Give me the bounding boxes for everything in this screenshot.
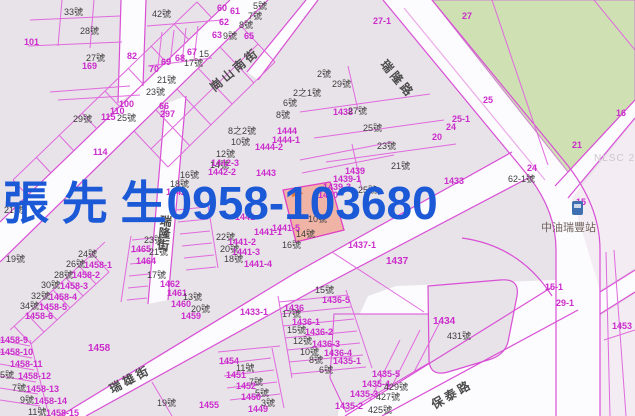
house-number-label: 29號 <box>332 80 351 89</box>
house-number-label: 32號 <box>31 292 50 301</box>
lot-number-label: 27-1 <box>373 17 391 26</box>
house-number-label: 29號 <box>73 115 92 124</box>
lot-number-label: 169 <box>82 62 97 71</box>
lot-number-label: 1458-4 <box>49 293 77 302</box>
house-number-label: 6號 <box>283 99 297 108</box>
lot-number-label: 63 <box>212 31 222 40</box>
house-number-label: 62-1號 <box>508 175 535 184</box>
lot-number-label: 1435-2 <box>335 402 363 411</box>
house-number-label: 2之1號 <box>293 89 321 98</box>
lot-number-label: 24 <box>446 123 456 132</box>
lot-number-label: 1458-1 <box>84 261 112 270</box>
lot-number-label: 1452 <box>236 382 256 391</box>
house-number-label: 425號 <box>368 406 392 415</box>
lot-number-label: 21 <box>572 141 582 150</box>
lot-number-label: 1460 <box>171 300 191 309</box>
lot-number-label: 1437-1 <box>348 241 376 250</box>
lot-number-label: 1449 <box>248 405 268 414</box>
gas-station-icon <box>572 201 583 215</box>
house-number-label: 19號 <box>6 255 25 264</box>
house-number-label: 24號 <box>78 250 97 259</box>
lot-number-label: 1458-9 <box>0 336 28 345</box>
house-number-label: 431號 <box>447 332 471 341</box>
lot-number-label: 65 <box>244 32 254 41</box>
lot-number-label: 101 <box>24 38 39 47</box>
lot-number-label: 62 <box>219 18 229 27</box>
house-number-label: 10號 <box>231 138 250 147</box>
lot-number-label: 70 <box>149 65 159 74</box>
lot-number-label: 27 <box>462 12 472 21</box>
phone-watermark: 張 先 生0958-103680 <box>3 167 438 233</box>
house-number-label: 18號 <box>224 255 243 264</box>
lot-number-label: 1458-13 <box>26 385 59 394</box>
lot-number-label: 15-1 <box>545 283 563 292</box>
nlsc-watermark: NLSC 2 <box>594 153 635 164</box>
house-number-label: 34號 <box>20 302 39 311</box>
lot-number-label: 1458-3 <box>60 282 88 291</box>
house-number-label: 12號 <box>293 337 312 346</box>
lot-number-label: 1458 <box>88 344 110 354</box>
house-number-label: 25號 <box>363 124 382 133</box>
lot-number-label: 1458-2 <box>72 271 100 280</box>
lot-number-label: 60 <box>217 4 227 13</box>
lot-number-label: 1435-3 <box>350 390 378 399</box>
lot-number-label: 1458-15 <box>46 409 79 416</box>
house-number-label: 2號 <box>317 70 331 79</box>
house-number-label: 26號 <box>66 260 85 269</box>
house-number-label: 5號 <box>0 371 14 380</box>
lot-number-label: 25 <box>483 96 493 105</box>
lot-number-label: 1436-5 <box>322 296 350 305</box>
house-number-label: 7號 <box>12 384 26 393</box>
lot-number-label: 67 <box>187 48 197 57</box>
lot-number-label: 1435-1 <box>333 357 361 366</box>
lot-number-label: 1453 <box>612 322 632 331</box>
house-number-label: 23號 <box>377 142 396 151</box>
lot-number-label: 1458-14 <box>34 397 67 406</box>
lot-number-label: 1459 <box>181 312 201 321</box>
lot-number-label: 1458-6 <box>25 312 53 321</box>
house-number-label: 15號 <box>315 286 334 295</box>
house-number-label: 5號 <box>253 2 267 11</box>
lot-number-label: 1437 <box>386 257 408 267</box>
house-number-label: 8號 <box>239 21 253 30</box>
house-number-label: 23號 <box>146 88 165 97</box>
house-number-label: 6號 <box>319 366 333 375</box>
lot-number-label: 1458-10 <box>0 348 33 357</box>
house-number-label: 15號 <box>287 326 306 335</box>
lot-number-label: 61 <box>230 7 240 16</box>
house-number-label: 11號 <box>28 408 46 416</box>
cadastral-map[interactable]: 33號42號28號27號16910182706968671517號21號23號6… <box>0 0 635 416</box>
lot-number-label: 1451 <box>226 371 246 380</box>
lot-number-label: 29-1 <box>556 299 574 308</box>
house-number-label: 30號 <box>41 281 60 290</box>
lot-number-label: 20 <box>432 133 442 142</box>
house-number-label: 28號 <box>80 27 99 36</box>
house-number-label: 27號 <box>348 107 367 116</box>
lot-number-label: 1433 <box>444 177 464 186</box>
lot-number-label: 1455 <box>199 401 219 410</box>
house-number-label: 33號 <box>64 8 83 17</box>
lot-number-label: 24 <box>527 164 537 173</box>
lot-number-label: 1458-12 <box>18 372 51 381</box>
lot-number-label: 1464 <box>136 257 156 266</box>
house-number-label: 42號 <box>152 10 171 19</box>
lot-number-label: 1444-2 <box>255 143 283 152</box>
house-number-label: 17號 <box>184 59 203 68</box>
lot-number-label: 114 <box>93 148 108 157</box>
house-number-label: 8號 <box>309 356 323 365</box>
lot-number-label: 1435-5 <box>372 370 400 379</box>
house-number-label: 19號 <box>157 399 176 408</box>
house-number-label: 8之2號 <box>228 127 256 136</box>
house-number-label: 16號 <box>282 241 301 250</box>
lot-number-label: 1434 <box>433 317 455 327</box>
lot-number-label: 1433-1 <box>240 308 268 317</box>
lot-number-label: 297 <box>160 110 175 119</box>
house-number-label: 9號 <box>223 32 237 41</box>
lot-number-label: 115 <box>101 113 116 122</box>
house-number-label: 8號 <box>276 111 290 120</box>
house-number-label: 21號 <box>157 76 176 85</box>
house-number-label: 429號 <box>384 383 408 392</box>
gas-station-label: 中油瑞豐站 <box>541 219 596 235</box>
house-number-label: 427號 <box>376 393 400 402</box>
house-number-label: 25號 <box>117 114 136 123</box>
lot-number-label: 16 <box>616 109 626 118</box>
lot-number-label: 69 <box>161 58 171 67</box>
house-number-label: 9號 <box>20 396 34 405</box>
lot-number-label: 1458-11 <box>10 360 43 369</box>
lot-number-label: 1441-4 <box>244 260 272 269</box>
lot-number-label: 1450 <box>241 393 261 402</box>
lot-number-label: 82 <box>127 52 137 61</box>
house-number-label: 28號 <box>54 271 73 280</box>
